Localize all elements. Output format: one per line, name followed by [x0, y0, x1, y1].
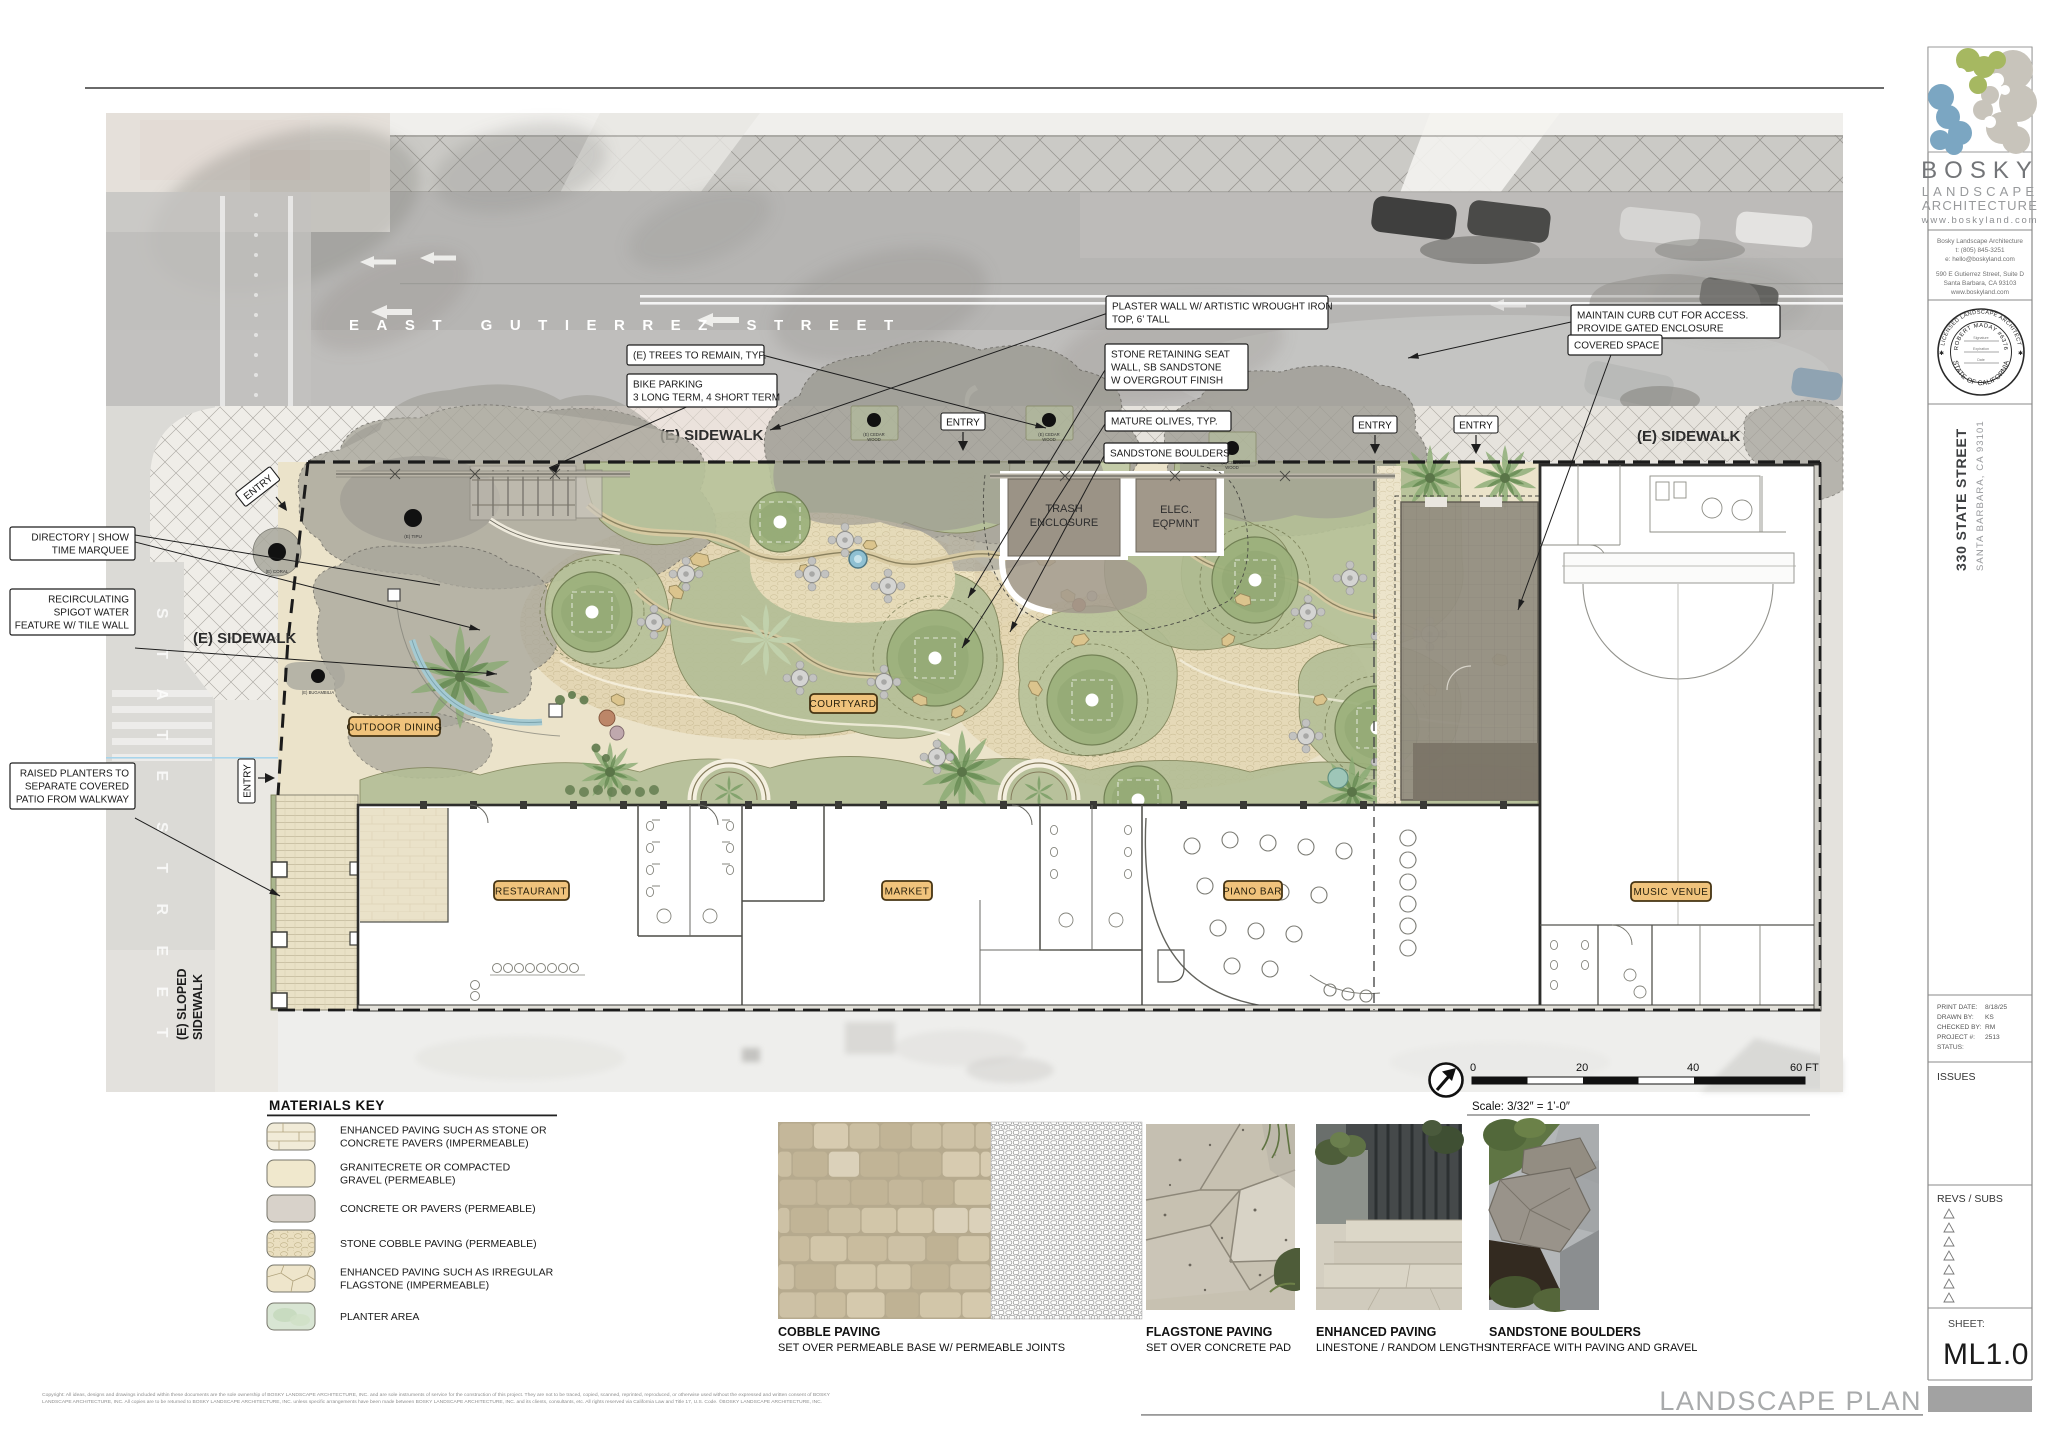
svg-text:(E) TREES TO REMAIN, TYP.: (E) TREES TO REMAIN, TYP. [633, 351, 767, 362]
svg-text:ARCHITECTURE: ARCHITECTURE [1922, 198, 2038, 213]
svg-text:BIKE PARKING: BIKE PARKING [633, 380, 703, 391]
svg-text:MATURE OLIVES, TYP.: MATURE OLIVES, TYP. [1111, 417, 1218, 428]
svg-text:REVS / SUBS: REVS / SUBS [1937, 1193, 2003, 1205]
svg-text:SET OVER PERMEABLE BASE W/ PER: SET OVER PERMEABLE BASE W/ PERMEABLE JOI… [778, 1342, 1065, 1354]
svg-text:RECIRCULATING: RECIRCULATING [48, 595, 129, 606]
svg-text:KS: KS [1985, 1014, 1994, 1021]
svg-text:FLAGSTONE PAVING: FLAGSTONE PAVING [1146, 1325, 1272, 1339]
svg-text:RESTAURANT: RESTAURANT [495, 887, 567, 898]
svg-text:✱: ✱ [1939, 350, 1944, 357]
svg-text:DIRECTORY | SHOW: DIRECTORY | SHOW [31, 533, 129, 544]
svg-text:(E) CORAL: (E) CORAL [266, 569, 289, 574]
svg-text:PATIO FROM WALKWAY: PATIO FROM WALKWAY [16, 795, 129, 806]
svg-text:LANDSCAPE ARCHITECTURE, INC.: LANDSCAPE ARCHITECTURE, INC. All copies … [42, 1399, 822, 1404]
svg-text:SIDEWALK: SIDEWALK [191, 974, 205, 1040]
svg-text:ENCLOSURE: ENCLOSURE [1030, 517, 1098, 529]
svg-text:Bosky Landscape Architecture: Bosky Landscape Architecture [1937, 238, 2023, 245]
svg-text:(E) BUGAMBILIA: (E) BUGAMBILIA [302, 690, 335, 695]
svg-text:EQPMNT: EQPMNT [1152, 518, 1199, 530]
svg-text:t: (805) 845-3251: t: (805) 845-3251 [1955, 247, 2004, 254]
svg-text:Expiration: Expiration [1973, 347, 1989, 351]
svg-text:SEPARATE COVERED: SEPARATE COVERED [25, 782, 129, 793]
svg-text:590 E Gutierrez Street, Suite: 590 E Gutierrez Street, Suite D [1936, 271, 2024, 278]
svg-text:Copyright: All ideas, designs: Copyright: All ideas, designs and drawin… [42, 1392, 830, 1397]
svg-text:0: 0 [1470, 1062, 1476, 1074]
svg-text:STONE COBBLE PAVING (PERMEABLE: STONE COBBLE PAVING (PERMEABLE) [340, 1238, 537, 1250]
svg-text:MAINTAIN CURB CUT FOR ACCESS.: MAINTAIN CURB CUT FOR ACCESS. [1577, 311, 1748, 322]
svg-text:40: 40 [1687, 1062, 1699, 1074]
svg-text:PLASTER WALL W/ ARTISTIC WROUG: PLASTER WALL W/ ARTISTIC WROUGHT IRON [1112, 302, 1333, 313]
svg-text:OUTDOOR DINING: OUTDOOR DINING [347, 723, 443, 734]
svg-text:MUSIC VENUE: MUSIC VENUE [1634, 887, 1709, 898]
svg-text:www.boskyland.com: www.boskyland.com [1950, 289, 2009, 296]
svg-text:WOOD: WOOD [1042, 437, 1056, 442]
svg-text:DRAWN BY:: DRAWN BY: [1937, 1014, 1974, 1021]
svg-text:LANDSCAPE: LANDSCAPE [1922, 184, 2039, 199]
svg-text:ENTRY: ENTRY [946, 418, 980, 429]
svg-text:PLANTER AREA: PLANTER AREA [340, 1311, 419, 1323]
svg-text:ENTRY: ENTRY [243, 764, 254, 798]
svg-text:20: 20 [1576, 1062, 1588, 1074]
svg-text:ISSUES: ISSUES [1937, 1071, 1976, 1083]
svg-text:60 FT: 60 FT [1790, 1062, 1819, 1074]
svg-text:MARKET: MARKET [885, 887, 930, 898]
svg-text:WOOD: WOOD [1225, 465, 1239, 470]
svg-text:WALL, SB SANDSTONE: WALL, SB SANDSTONE [1111, 363, 1222, 374]
svg-text:BOSKY: BOSKY [1921, 157, 2039, 184]
svg-text:S T A T E: S T A T E [153, 608, 170, 794]
svg-text:SANTA BARBARA, CA 93101: SANTA BARBARA, CA 93101 [1975, 420, 1986, 571]
svg-text:CONCRETE OR PAVERS (PERMEABLE): CONCRETE OR PAVERS (PERMEABLE) [340, 1203, 536, 1215]
svg-text:8/18/25: 8/18/25 [1985, 1004, 2007, 1011]
svg-text:STONE RETAINING SEAT: STONE RETAINING SEAT [1111, 350, 1230, 361]
svg-text:Date: Date [1977, 358, 1985, 362]
svg-text:ENTRY: ENTRY [1459, 421, 1493, 432]
svg-text:COBBLE PAVING: COBBLE PAVING [778, 1325, 880, 1339]
svg-text:RM: RM [1985, 1024, 1995, 1031]
svg-text:ENTRY: ENTRY [1358, 421, 1392, 432]
svg-text:COURTYARD: COURTYARD [810, 699, 877, 710]
svg-text:SHEET:: SHEET: [1948, 1318, 1985, 1330]
svg-text:TOP, 6’ TALL: TOP, 6’ TALL [1112, 315, 1170, 326]
svg-text:STATUS:: STATUS: [1937, 1044, 1964, 1051]
svg-text:www.boskyland.com: www.boskyland.com [1921, 215, 2039, 226]
svg-text:COVERED SPACE: COVERED SPACE [1574, 341, 1660, 352]
svg-text:(E) SIDEWALK: (E) SIDEWALK [193, 630, 296, 647]
svg-text:SANDSTONE BOULDERS: SANDSTONE BOULDERS [1110, 449, 1230, 460]
svg-text:SET OVER CONCRETE PAD: SET OVER CONCRETE PAD [1146, 1342, 1291, 1354]
svg-text:ENHANCED PAVING SUCH AS STONE: ENHANCED PAVING SUCH AS STONE OR [340, 1125, 547, 1137]
svg-text:FEATURE W/ TILE WALL: FEATURE W/ TILE WALL [15, 621, 130, 632]
svg-text:e: hello@boskyland.com: e: hello@boskyland.com [1945, 256, 2015, 263]
svg-text:Signature: Signature [1973, 336, 1988, 340]
svg-text:GRANITECRETE OR COMPACTED: GRANITECRETE OR COMPACTED [340, 1162, 511, 1174]
svg-text:330 STATE STREET: 330 STATE STREET [1953, 428, 1969, 571]
svg-text:CHECKED BY:: CHECKED BY: [1937, 1024, 1982, 1031]
svg-text:RAISED PLANTERS TO: RAISED PLANTERS TO [20, 769, 129, 780]
svg-text:INTERFACE WITH PAVING AND GRAV: INTERFACE WITH PAVING AND GRAVEL [1489, 1342, 1697, 1354]
svg-text:W OVERGROUT FINISH: W OVERGROUT FINISH [1111, 376, 1223, 387]
svg-text:SPIGOT WATER: SPIGOT WATER [54, 608, 129, 619]
svg-text:TIME MARQUEE: TIME MARQUEE [52, 546, 130, 557]
svg-text:ENHANCED PAVING SUCH AS IRREGU: ENHANCED PAVING SUCH AS IRREGULAR [340, 1267, 554, 1279]
svg-text:✱: ✱ [2018, 350, 2023, 357]
svg-text:LANDSCAPE PLAN: LANDSCAPE PLAN [1659, 1386, 1922, 1416]
svg-text:(E) TIPU: (E) TIPU [404, 534, 421, 539]
svg-text:Scale: 3/32″ = 1’-0″: Scale: 3/32″ = 1’-0″ [1472, 1101, 1570, 1113]
svg-text:ELEC.: ELEC. [1160, 504, 1192, 516]
svg-text:SANDSTONE BOULDERS: SANDSTONE BOULDERS [1489, 1325, 1641, 1339]
svg-text:EAST GUTIERREZ STREET: EAST GUTIERREZ STREET [349, 317, 911, 334]
svg-text:PROVIDE GATED ENCLOSURE: PROVIDE GATED ENCLOSURE [1577, 324, 1724, 335]
svg-text:WOOD: WOOD [867, 437, 881, 442]
svg-text:(E) SLOPED: (E) SLOPED [175, 968, 189, 1040]
svg-text:ML1.0: ML1.0 [1943, 1338, 2029, 1371]
svg-text:S T R E E T: S T R E E T [153, 822, 170, 1050]
svg-text:PIANO BAR: PIANO BAR [1223, 887, 1282, 898]
svg-text:CONCRETE PAVERS (IMPERMEABLE): CONCRETE PAVERS (IMPERMEABLE) [340, 1138, 529, 1150]
svg-text:PROJECT #:: PROJECT #: [1937, 1034, 1975, 1041]
svg-text:FLAGSTONE (IMPERMEABLE): FLAGSTONE (IMPERMEABLE) [340, 1280, 489, 1292]
svg-text:MATERIALS KEY: MATERIALS KEY [269, 1098, 385, 1113]
svg-text:ENHANCED PAVING: ENHANCED PAVING [1316, 1325, 1436, 1339]
svg-text:2513: 2513 [1985, 1034, 2000, 1041]
svg-text:GRAVEL (PERMEABLE): GRAVEL (PERMEABLE) [340, 1175, 456, 1187]
svg-text:PRINT DATE:: PRINT DATE: [1937, 1004, 1978, 1011]
svg-text:Santa Barbara, CA 93103: Santa Barbara, CA 93103 [1944, 280, 2017, 287]
svg-text:3 LONG TERM, 4 SHORT TERM: 3 LONG TERM, 4 SHORT TERM [633, 393, 780, 404]
svg-text:LINESTONE / RANDOM LENGTHS: LINESTONE / RANDOM LENGTHS [1316, 1342, 1491, 1354]
svg-text:(E) SIDEWALK: (E) SIDEWALK [1637, 428, 1740, 445]
